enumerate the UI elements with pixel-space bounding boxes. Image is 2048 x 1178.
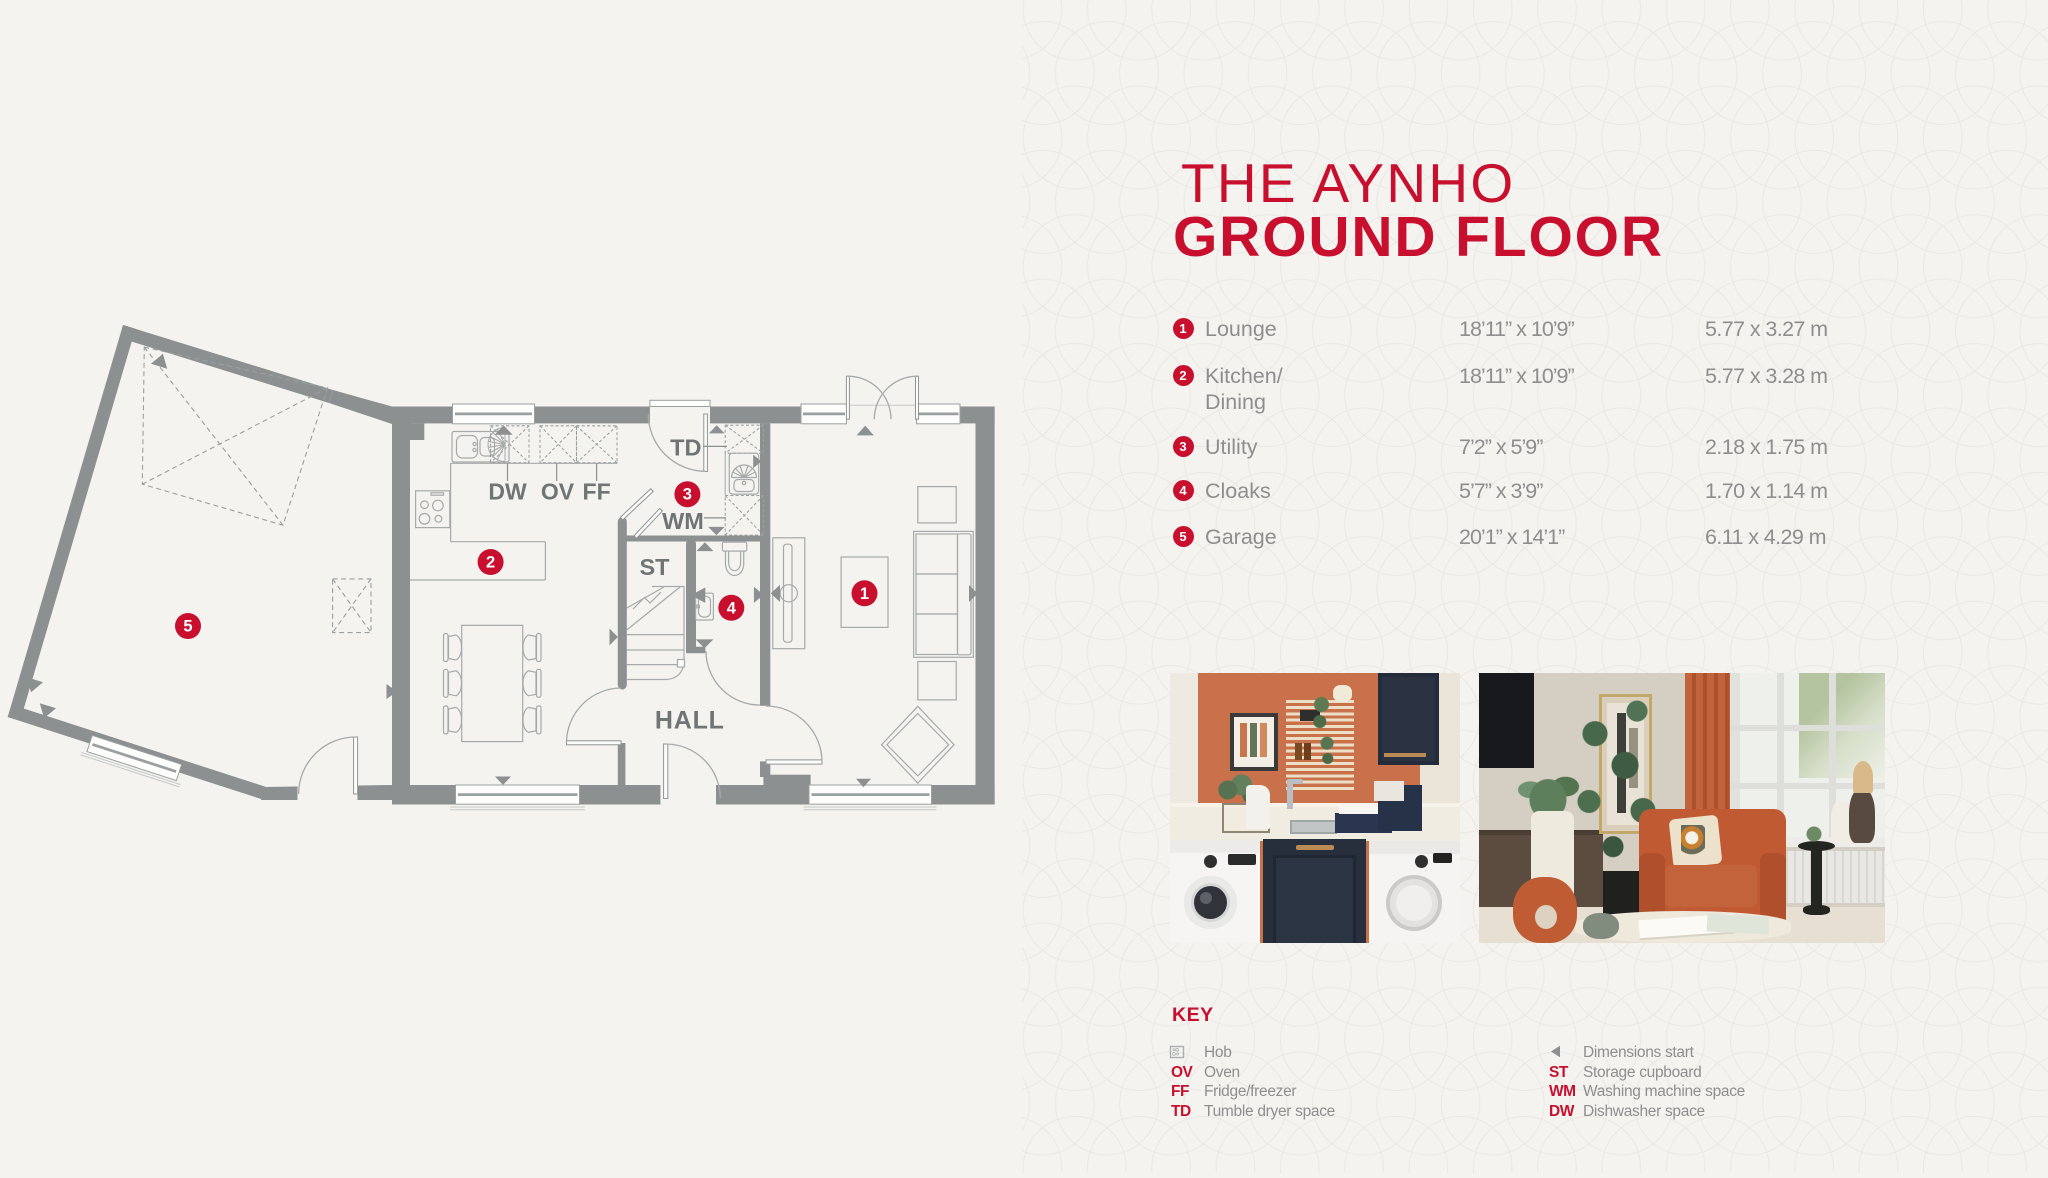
svg-text:FF: FF xyxy=(583,478,611,504)
svg-text:WM: WM xyxy=(662,508,704,534)
svg-text:4: 4 xyxy=(727,599,737,617)
svg-text:1: 1 xyxy=(860,585,869,603)
svg-text:OV: OV xyxy=(541,478,575,504)
svg-text:3: 3 xyxy=(683,486,692,504)
svg-text:2: 2 xyxy=(486,554,495,572)
svg-text:5: 5 xyxy=(183,618,192,636)
svg-text:TD: TD xyxy=(670,435,701,461)
svg-text:DW: DW xyxy=(488,478,527,504)
svg-text:HALL: HALL xyxy=(655,706,725,734)
svg-text:ST: ST xyxy=(639,554,670,580)
